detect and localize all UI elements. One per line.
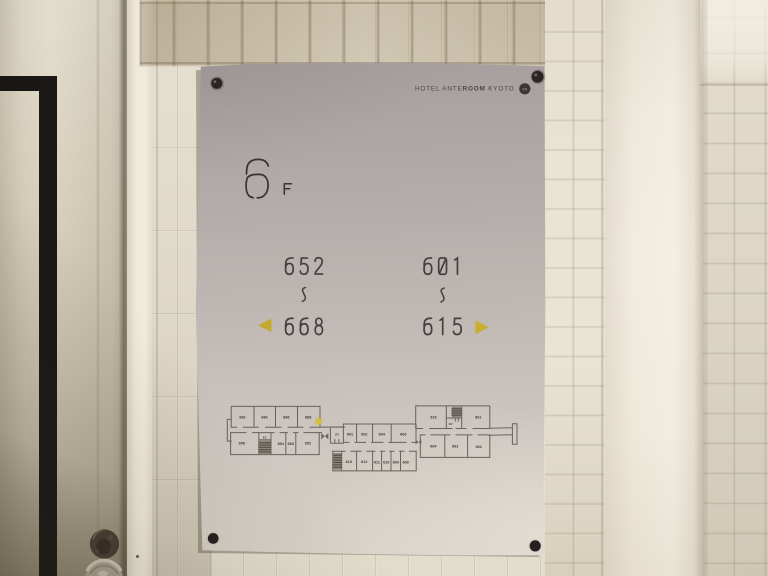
svg-text:609: 609 xyxy=(393,460,399,464)
svg-text:611: 611 xyxy=(374,460,380,464)
svg-text:612: 612 xyxy=(361,460,367,464)
svg-text:662: 662 xyxy=(239,416,245,420)
svg-text:604: 604 xyxy=(430,445,437,449)
svg-text:656: 656 xyxy=(239,442,245,446)
svg-text:664: 664 xyxy=(261,416,268,420)
svg-text:666: 666 xyxy=(283,416,289,420)
svg-text:613: 613 xyxy=(346,460,352,464)
svg-text:EV: EV xyxy=(263,435,267,439)
svg-text:608: 608 xyxy=(402,460,408,464)
svg-text:610: 610 xyxy=(383,460,389,464)
svg-text:EV: EV xyxy=(335,433,339,437)
svg-text:EV: EV xyxy=(449,422,453,426)
svg-text:602: 602 xyxy=(476,445,482,449)
svg-text:653: 653 xyxy=(288,442,294,446)
svg-text:603: 603 xyxy=(452,445,458,449)
svg-text:615: 615 xyxy=(430,416,436,420)
svg-text:601: 601 xyxy=(347,432,353,436)
svg-text:601: 601 xyxy=(475,416,481,420)
svg-text:652: 652 xyxy=(305,442,311,446)
svg-text:668: 668 xyxy=(305,416,311,420)
svg-text:HOTEL ANTEROOM KYOTO: HOTEL ANTEROOM KYOTO xyxy=(415,85,514,92)
svg-text:604: 604 xyxy=(379,433,386,437)
svg-text:654: 654 xyxy=(278,442,285,446)
svg-text:606: 606 xyxy=(400,433,406,437)
svg-text:602: 602 xyxy=(361,433,367,437)
